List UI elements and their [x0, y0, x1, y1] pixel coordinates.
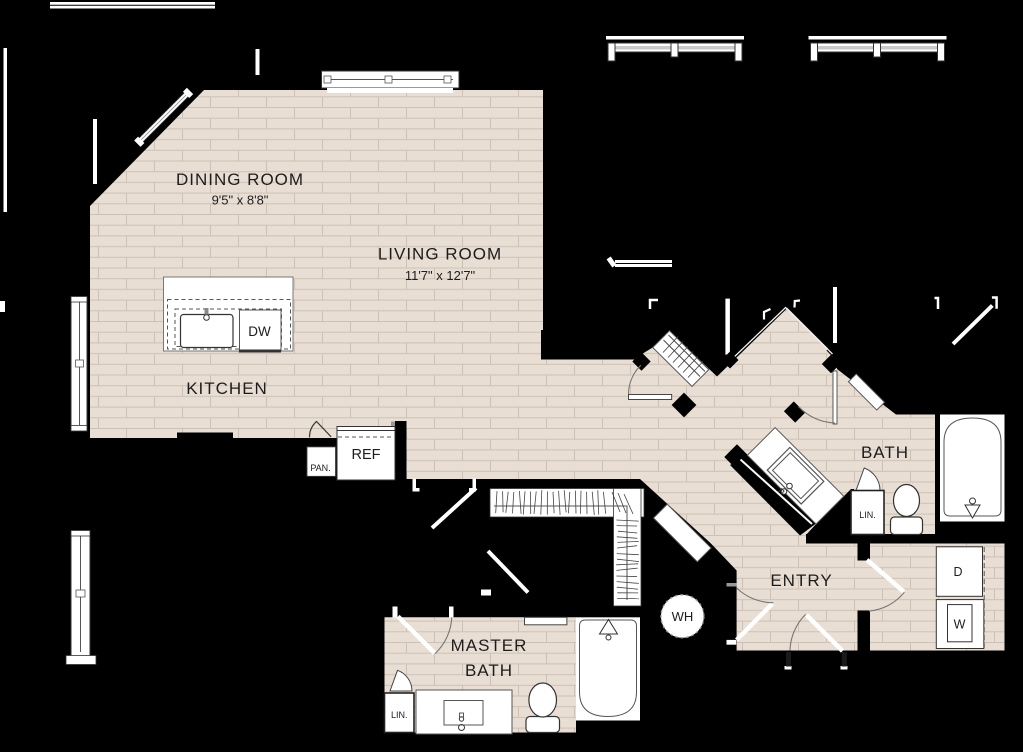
svg-text:REF: REF [352, 447, 381, 463]
svg-text:LIN.: LIN. [859, 510, 876, 520]
svg-text:LIN.: LIN. [391, 710, 408, 720]
svg-text:DW: DW [248, 324, 271, 339]
svg-text:ENTRY: ENTRY [770, 571, 832, 590]
svg-text:11'7" x 12'7": 11'7" x 12'7" [405, 268, 476, 283]
svg-text:D: D [953, 565, 962, 579]
svg-text:BATH: BATH [861, 443, 909, 462]
svg-text:W: W [954, 618, 966, 632]
svg-text:PAN.: PAN. [310, 463, 330, 473]
svg-text:BATH: BATH [465, 661, 513, 680]
svg-text:LIVING ROOM: LIVING ROOM [378, 245, 502, 264]
svg-text:KITCHEN: KITCHEN [186, 379, 268, 398]
svg-text:DINING ROOM: DINING ROOM [176, 170, 304, 189]
svg-text:MASTER: MASTER [451, 636, 528, 655]
svg-text:9'5" x 8'8": 9'5" x 8'8" [212, 193, 269, 208]
svg-text:WH: WH [672, 609, 694, 624]
